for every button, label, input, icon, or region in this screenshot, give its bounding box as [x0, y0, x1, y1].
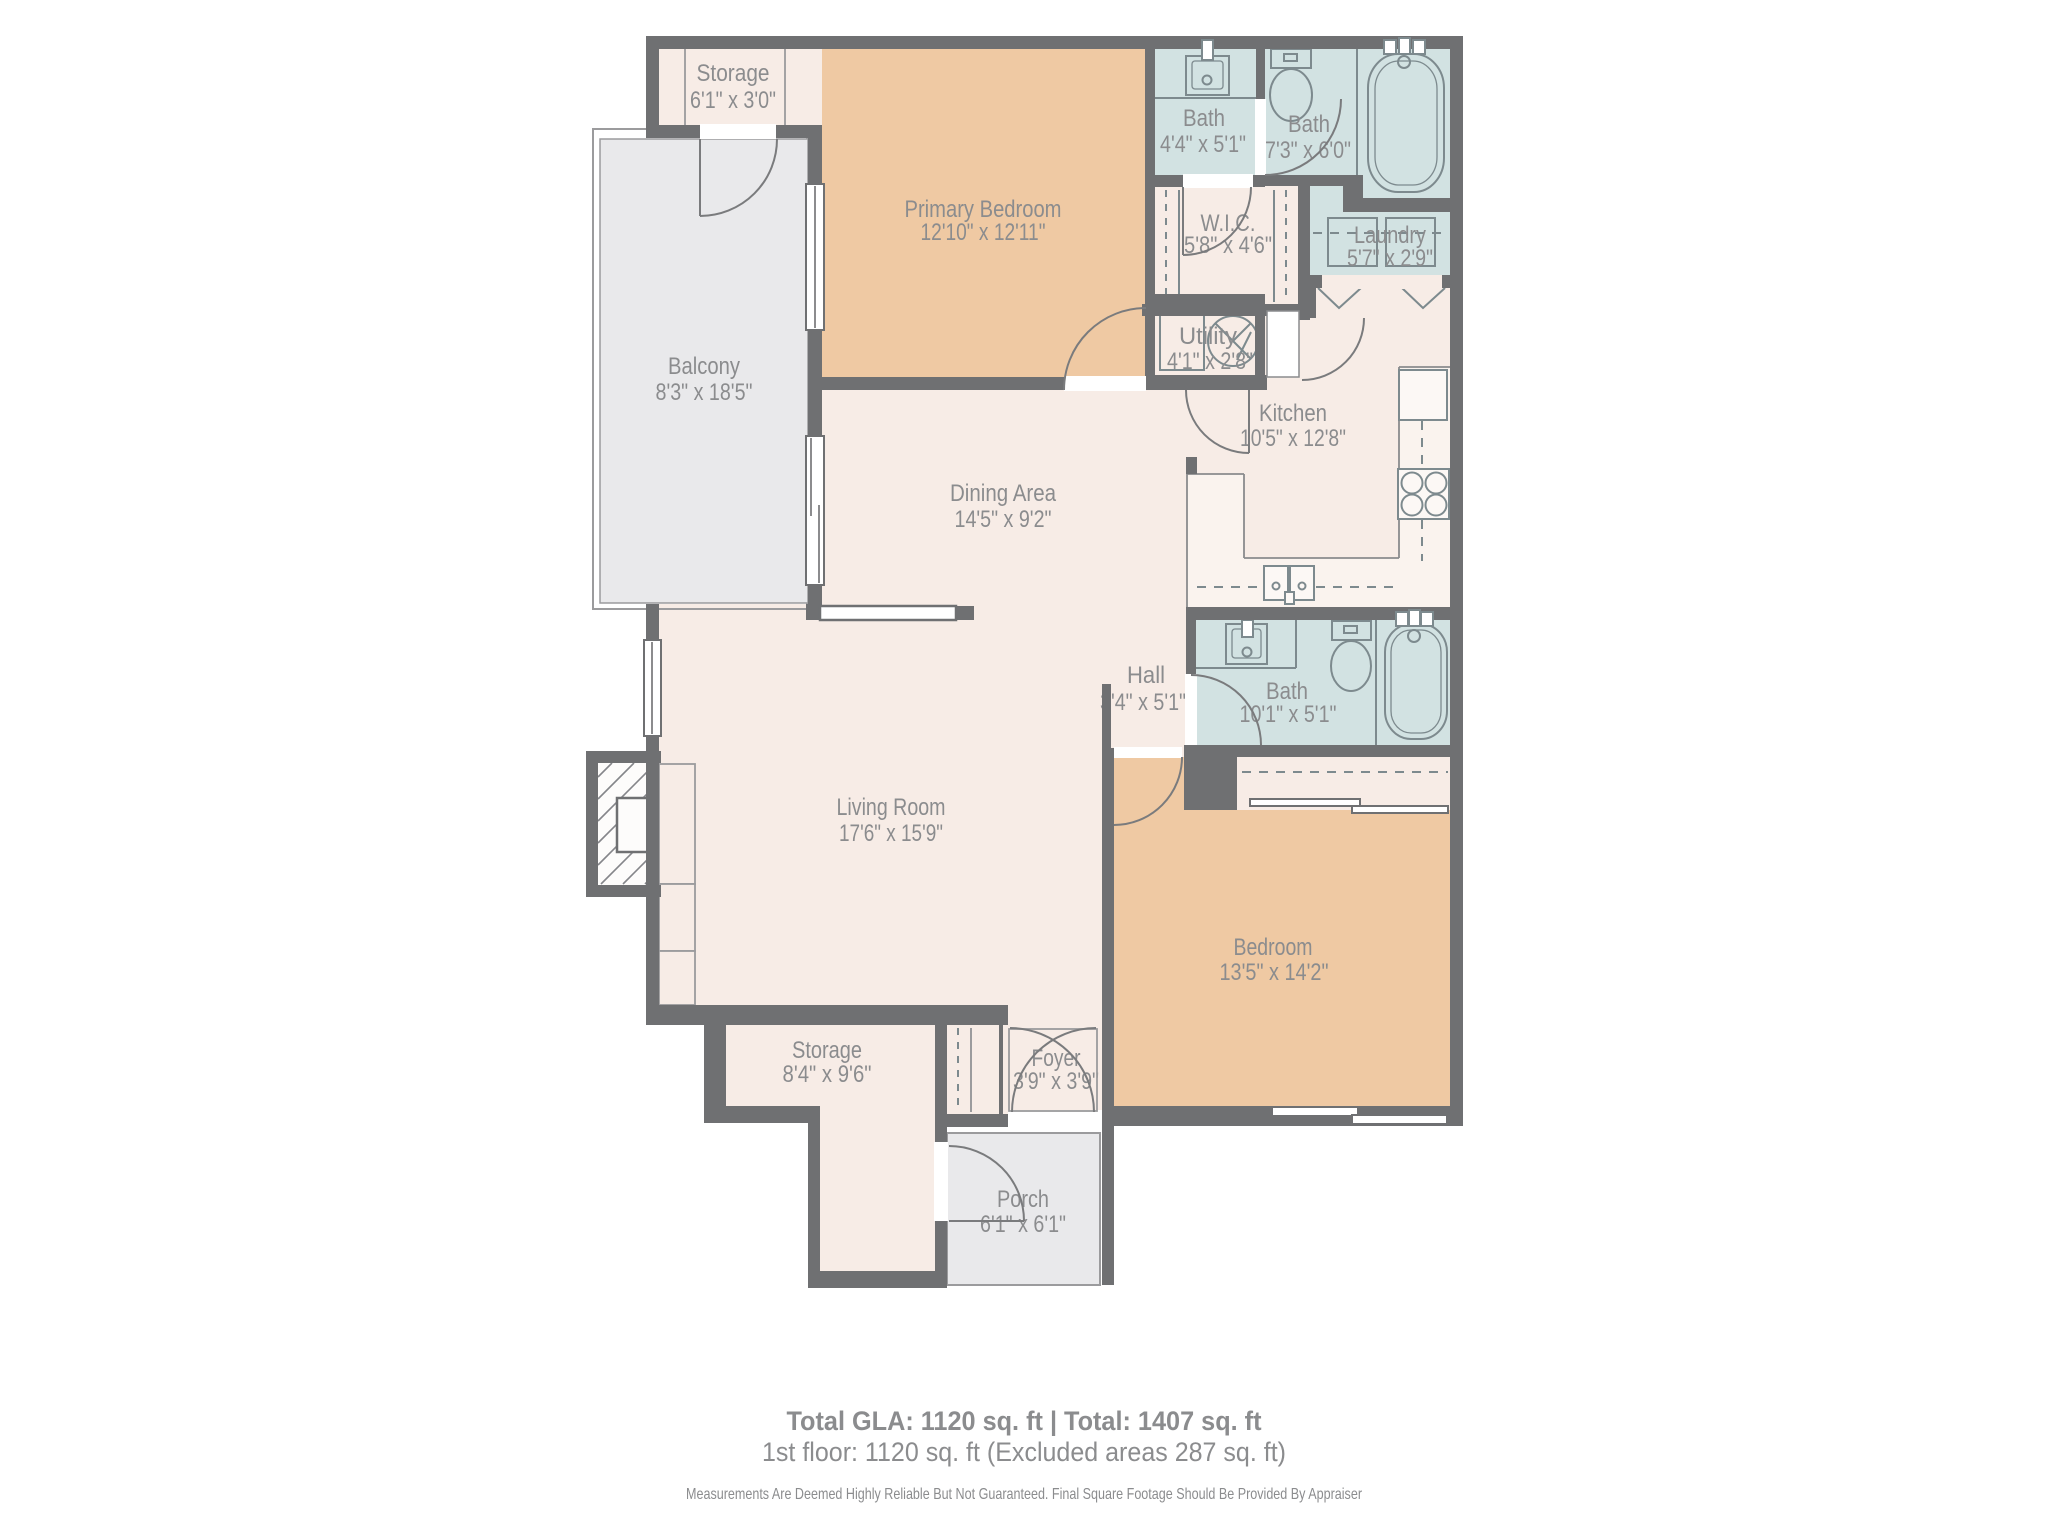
svg-text:Kitchen: Kitchen	[1259, 400, 1327, 427]
svg-text:6'1" x 3'0": 6'1" x 3'0"	[690, 87, 776, 114]
svg-text:Bedroom: Bedroom	[1234, 934, 1313, 961]
svg-text:8'3" x 18'5": 8'3" x 18'5"	[656, 379, 753, 406]
svg-text:Total GLA: 1120 sq. ft | Total: Total GLA: 1120 sq. ft | Total: 1407 sq.…	[787, 1406, 1262, 1436]
svg-text:Measurements Are Deemed Highly: Measurements Are Deemed Highly Reliable …	[686, 1486, 1363, 1503]
svg-text:3'4" x 5'1": 3'4" x 5'1"	[1100, 689, 1186, 716]
svg-text:12'10" x 12'11": 12'10" x 12'11"	[921, 219, 1046, 246]
svg-text:17'6" x 15'9": 17'6" x 15'9"	[839, 820, 943, 847]
svg-text:14'5" x 9'2": 14'5" x 9'2"	[955, 506, 1052, 533]
svg-text:13'5" x 14'2": 13'5" x 14'2"	[1220, 959, 1329, 986]
svg-text:5'8" x 4'6": 5'8" x 4'6"	[1184, 232, 1272, 259]
svg-text:Dining Area: Dining Area	[950, 480, 1057, 507]
svg-text:Storage: Storage	[697, 60, 770, 87]
svg-text:Utility: Utility	[1179, 323, 1237, 350]
svg-text:4'4" x 5'1": 4'4" x 5'1"	[1160, 131, 1246, 158]
svg-text:Living Room: Living Room	[837, 794, 946, 821]
svg-text:7'3" x 6'0": 7'3" x 6'0"	[1265, 137, 1351, 164]
svg-text:10'5" x 12'8": 10'5" x 12'8"	[1240, 425, 1346, 452]
svg-text:8'4" x 9'6": 8'4" x 9'6"	[783, 1061, 872, 1088]
svg-text:1st floor: 1120 sq. ft (Exclud: 1st floor: 1120 sq. ft (Excluded areas 2…	[762, 1437, 1286, 1467]
svg-text:3'9" x 3'9": 3'9" x 3'9"	[1013, 1068, 1099, 1095]
svg-text:Bath: Bath	[1288, 111, 1330, 138]
svg-text:5'7" x 2'9": 5'7" x 2'9"	[1347, 245, 1433, 272]
svg-text:4'1" x 2'8": 4'1" x 2'8"	[1167, 348, 1253, 375]
svg-text:Bath: Bath	[1183, 105, 1225, 132]
svg-text:Hall: Hall	[1127, 662, 1165, 689]
svg-text:Storage: Storage	[792, 1037, 862, 1064]
svg-text:Balcony: Balcony	[668, 353, 740, 380]
